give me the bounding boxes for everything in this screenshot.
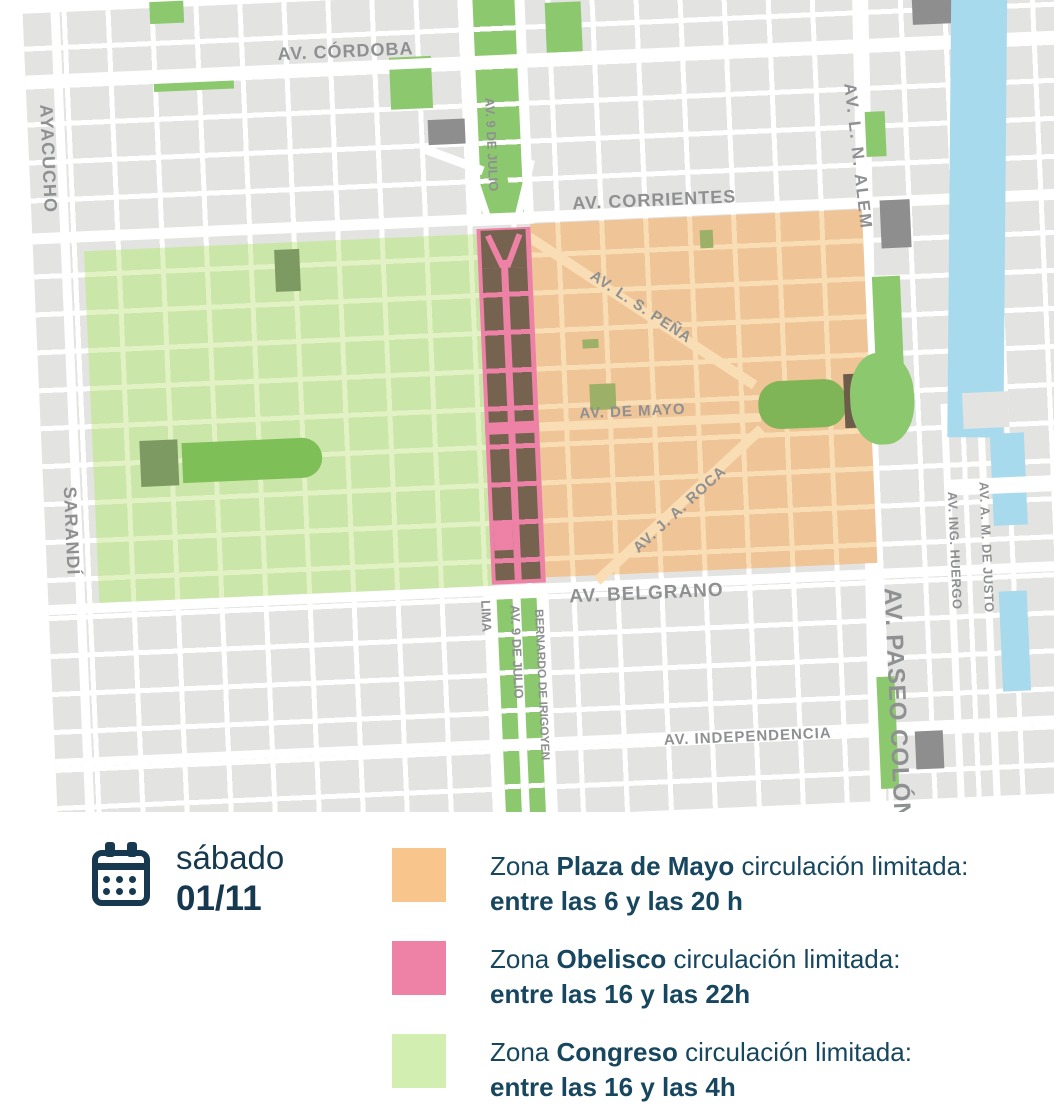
legend-swatch-obelisco <box>392 941 446 995</box>
park-block <box>149 1 184 24</box>
legend-text: Zona Plaza de Mayo circulación limitada:… <box>490 848 968 919</box>
legend-text: Zona Obelisco circulación limitada: entr… <box>490 941 900 1012</box>
legend: sábado 01/11 Zona Plaza de Mayo circulac… <box>0 812 1054 1108</box>
water <box>947 0 1007 438</box>
date-day: sábado <box>176 838 284 878</box>
building-block <box>915 730 945 769</box>
map-paper: AV. CÓRDOBA AYACUCHO AV. 9 DE JULIO AV. … <box>23 0 1054 812</box>
obelisco-block <box>480 229 527 269</box>
building-block <box>428 119 466 146</box>
park-block <box>582 339 598 349</box>
congreso-building <box>139 439 179 487</box>
legend-row-congreso: Zona Congreso circulación limitada: entr… <box>392 1034 968 1105</box>
parque-colon <box>848 351 916 446</box>
park-block <box>545 1 583 53</box>
dock-block <box>962 391 1010 429</box>
map: AV. CÓRDOBA AYACUCHO AV. 9 DE JULIO AV. … <box>0 0 1054 812</box>
calendar-icon <box>92 850 150 906</box>
date-group: sábado 01/11 <box>92 838 284 920</box>
building-block <box>274 249 301 292</box>
park-block <box>700 230 714 249</box>
street-label-sarandi: SARANDÍ <box>59 486 84 576</box>
pink-open-block <box>493 520 513 551</box>
legend-swatch-congreso <box>392 1034 446 1088</box>
water <box>999 590 1031 691</box>
date-text: sábado 01/11 <box>176 838 284 920</box>
street-cordoba <box>25 25 1054 86</box>
street-label-independencia: AV. INDEPENDENCIA <box>664 725 832 749</box>
legend-swatch-plaza-de-mayo <box>392 848 446 902</box>
infographic: AV. CÓRDOBA AYACUCHO AV. 9 DE JULIO AV. … <box>0 0 1054 1108</box>
avenida-de-mayo-crossing <box>485 421 539 435</box>
legend-rows: Zona Plaza de Mayo circulación limitada:… <box>392 848 968 1105</box>
park-block <box>865 111 887 157</box>
legend-text: Zona Congreso circulación limitada: entr… <box>490 1034 912 1105</box>
plaza-de-mayo-park <box>757 378 847 430</box>
building-block <box>880 199 912 248</box>
street-label-lima: LIMA <box>478 600 494 632</box>
congreso-park <box>181 437 323 483</box>
legend-row-obelisco: Zona Obelisco circulación limitada: entr… <box>392 941 968 1012</box>
legend-row-plaza-de-mayo: Zona Plaza de Mayo circulación limitada:… <box>392 848 968 919</box>
date-value: 01/11 <box>176 878 284 920</box>
park-block <box>154 81 234 92</box>
